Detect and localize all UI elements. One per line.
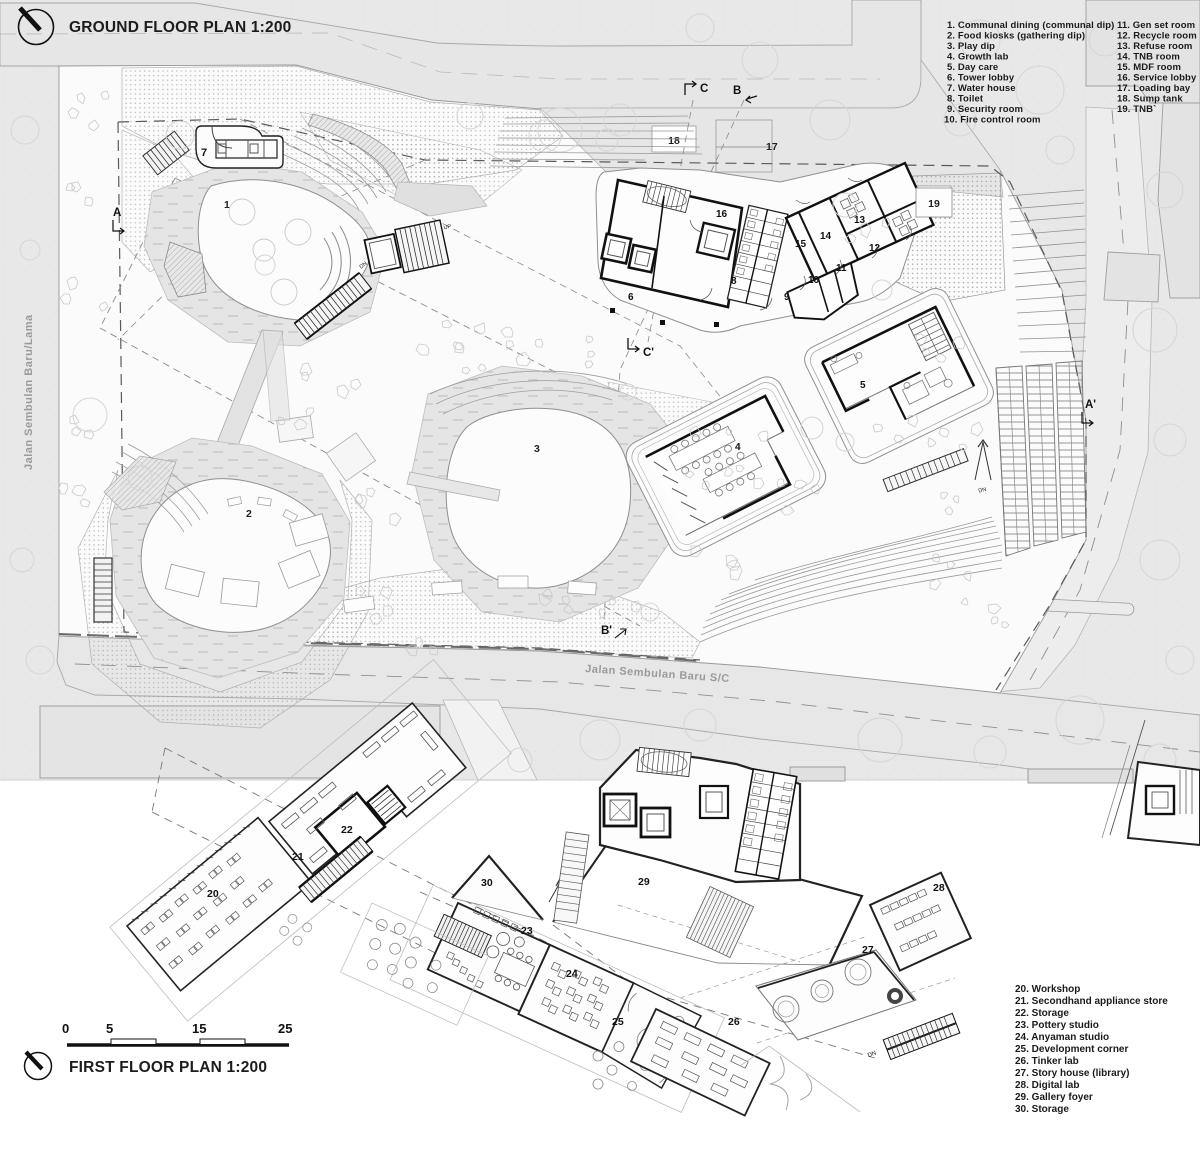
svg-text:7. Water house: 7. Water house: [947, 83, 1016, 94]
svg-text:21. Secondhand appliance store: 21. Secondhand appliance store: [1015, 996, 1168, 1007]
svg-text:3. Play dip: 3. Play dip: [947, 41, 995, 52]
svg-text:26: 26: [728, 1016, 740, 1028]
svg-text:5. Day care: 5. Day care: [947, 62, 998, 73]
svg-text:16. Service lobby: 16. Service lobby: [1117, 73, 1197, 84]
svg-text:B: B: [733, 85, 741, 97]
svg-text:8: 8: [731, 276, 737, 287]
svg-text:6: 6: [628, 292, 634, 303]
svg-text:18: 18: [668, 135, 680, 147]
svg-text:17: 17: [766, 141, 778, 153]
svg-text:20. Workshop: 20. Workshop: [1015, 984, 1080, 995]
svg-text:FIRST FLOOR PLAN 1:200: FIRST FLOOR PLAN 1:200: [69, 1059, 267, 1076]
svg-text:14: 14: [820, 231, 832, 242]
svg-text:30: 30: [481, 877, 493, 889]
svg-text:29. Gallery foyer: 29. Gallery foyer: [1015, 1092, 1093, 1103]
svg-text:22: 22: [341, 824, 353, 836]
svg-text:15: 15: [192, 1021, 206, 1036]
svg-text:28. Digital lab: 28. Digital lab: [1015, 1080, 1079, 1091]
svg-text:19: 19: [928, 198, 940, 210]
svg-text:3: 3: [534, 443, 540, 455]
svg-text:13. Refuse room: 13. Refuse room: [1117, 41, 1192, 52]
svg-text:28: 28: [933, 882, 945, 894]
svg-text:2: 2: [246, 508, 252, 520]
svg-text:19. TNB`: 19. TNB`: [1117, 104, 1156, 115]
svg-text:10. Fire control room: 10. Fire control room: [944, 115, 1041, 126]
svg-text:25: 25: [278, 1021, 292, 1036]
svg-text:B': B': [601, 625, 612, 637]
svg-text:27. Story house (library): 27. Story house (library): [1015, 1068, 1129, 1079]
svg-text:11: 11: [836, 263, 847, 274]
svg-text:C: C: [700, 83, 708, 95]
svg-text:2. Food kiosks (gathering dip): 2. Food kiosks (gathering dip): [947, 31, 1085, 42]
svg-text:5: 5: [106, 1021, 113, 1036]
svg-text:21: 21: [292, 851, 304, 863]
svg-text:9: 9: [784, 292, 790, 303]
svg-text:9. Security room: 9. Security room: [947, 104, 1023, 115]
svg-text:15: 15: [795, 239, 807, 250]
svg-text:14. TNB room: 14. TNB room: [1117, 52, 1180, 63]
svg-text:24: 24: [566, 968, 578, 980]
svg-text:29: 29: [638, 876, 650, 888]
svg-text:26. Tinker lab: 26. Tinker lab: [1015, 1056, 1079, 1067]
svg-text:20: 20: [207, 888, 219, 900]
svg-text:5: 5: [860, 380, 866, 391]
svg-text:12. Recycle room: 12. Recycle room: [1117, 31, 1197, 42]
svg-text:1. Communal dining (communal d: 1. Communal dining (communal dip): [947, 20, 1114, 31]
svg-text:4: 4: [735, 442, 741, 453]
svg-text:16: 16: [716, 209, 728, 220]
svg-text:A': A': [1085, 399, 1096, 411]
svg-text:15. MDF room: 15. MDF room: [1117, 62, 1181, 73]
svg-text:25: 25: [612, 1016, 624, 1028]
svg-text:11. Gen set room: 11. Gen set room: [1117, 20, 1195, 31]
svg-text:17. Loading bay: 17. Loading bay: [1117, 83, 1191, 94]
svg-text:27: 27: [862, 944, 874, 956]
svg-text:6. Tower lobby: 6. Tower lobby: [947, 73, 1015, 84]
svg-text:23. Pottery studio: 23. Pottery studio: [1015, 1020, 1099, 1031]
svg-text:8. Toilet: 8. Toilet: [947, 94, 984, 105]
svg-text:GROUND FLOOR PLAN 1:200: GROUND FLOOR PLAN 1:200: [69, 19, 292, 36]
svg-text:10: 10: [808, 275, 820, 286]
svg-text:4. Growth lab: 4. Growth lab: [947, 52, 1009, 63]
svg-text:22. Storage: 22. Storage: [1015, 1008, 1069, 1019]
svg-text:18. Sump tank: 18. Sump tank: [1117, 94, 1183, 105]
svg-text:30. Storage: 30. Storage: [1015, 1104, 1069, 1115]
svg-text:12: 12: [869, 243, 881, 254]
svg-text:7: 7: [201, 147, 207, 159]
svg-text:Jalan Sembulan Baru/Lama: Jalan Sembulan Baru/Lama: [23, 314, 35, 470]
svg-text:A: A: [113, 207, 121, 219]
svg-text:23: 23: [521, 925, 533, 937]
svg-text:24. Anyaman studio: 24. Anyaman studio: [1015, 1032, 1109, 1043]
svg-text:0: 0: [62, 1021, 69, 1036]
svg-text:25. Development corner: 25. Development corner: [1015, 1044, 1128, 1055]
svg-text:C': C': [643, 347, 654, 359]
